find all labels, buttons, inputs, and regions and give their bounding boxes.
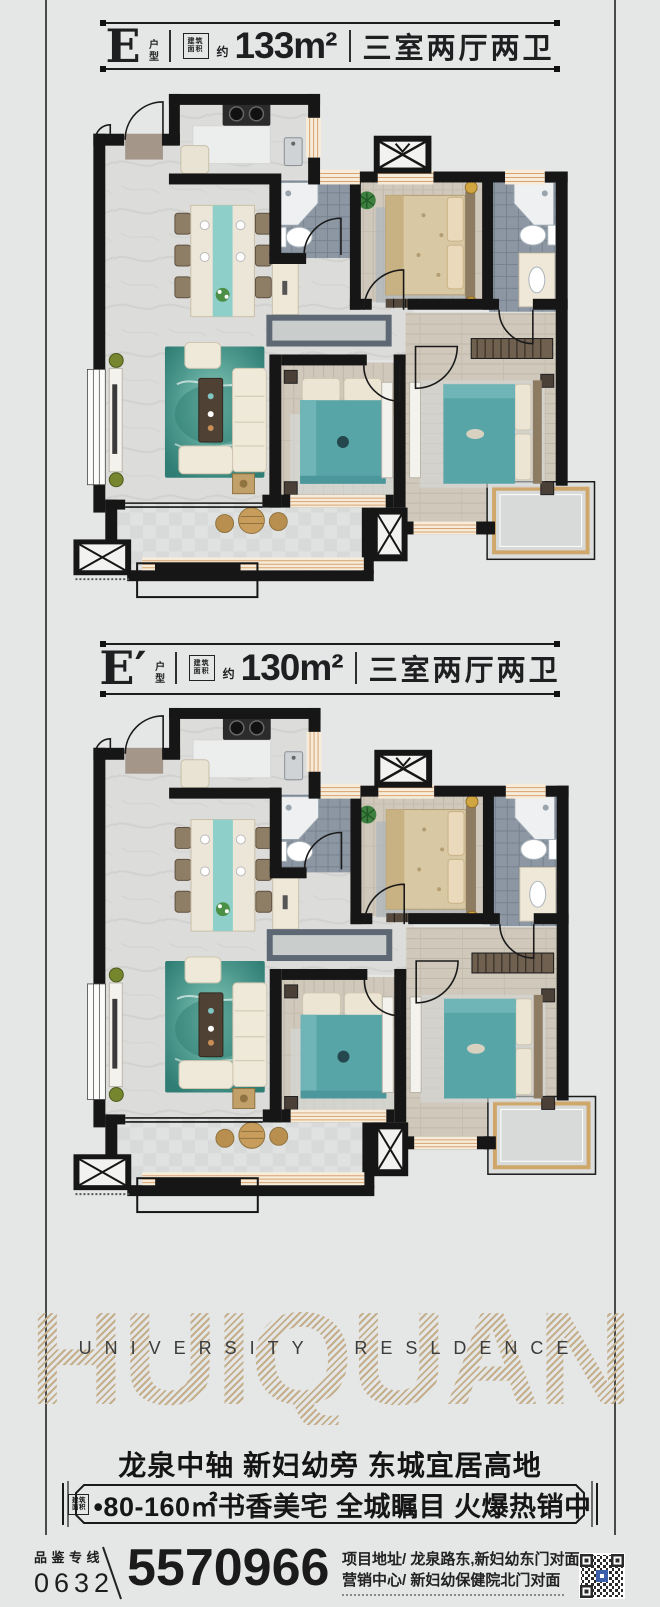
plan-eprime-area: 130m²: [241, 647, 343, 689]
plan-eprime-suffix: 户型: [153, 661, 163, 685]
address-line-1: 项目地址/ 龙泉路东,新妇幼东门对面: [342, 1549, 572, 1570]
plan-e-top-rule: [104, 22, 556, 24]
divider: [175, 652, 177, 684]
divider: [355, 652, 357, 684]
plan-e-rooms: 三室两厅两卫: [363, 25, 555, 67]
banner-box-line2: 面积: [72, 1504, 86, 1511]
banner-area-box-icon: 建筑 面积: [68, 1494, 89, 1515]
approx-label: 约: [223, 665, 235, 682]
plan-eprime-bottom-rule: [104, 693, 556, 695]
banner-text: •80-160㎡书香美宅 全城瞩目 火爆热销中: [93, 1485, 591, 1524]
area-box-line2: 面积: [188, 46, 204, 54]
plan-e-suffix: 户型: [147, 39, 157, 63]
promo-banner: 建筑 面积 •80-160㎡书香美宅 全城瞩目 火爆热销中: [60, 1481, 600, 1527]
area-box-line2: 面积: [194, 668, 210, 676]
area-box-icon: 建筑 面积: [189, 655, 215, 681]
plan-e-letter: E: [105, 23, 140, 69]
banner-content: 建筑 面积 •80-160㎡书香美宅 全城瞩目 火爆热销中: [60, 1481, 600, 1527]
headline: 龙泉中轴 新妇幼旁 东城宜居高地: [0, 1444, 660, 1484]
address-block: 项目地址/ 龙泉路东,新妇幼东门对面 营销中心/ 新妇幼保健院北门对面: [342, 1549, 572, 1591]
divider: [169, 30, 171, 62]
area-box-line1: 建筑: [194, 660, 210, 668]
qr-code: [579, 1553, 625, 1599]
slash-divider: [100, 1545, 124, 1601]
area-box-line1: 建筑: [188, 38, 204, 46]
approx-label: 约: [217, 43, 229, 60]
divider: [349, 30, 351, 62]
floorplan-e: [64, 86, 599, 613]
plan-eprime-header: E′ 户型 建筑 面积 约 130m² 三室两厅两卫: [0, 648, 660, 688]
floorplan-eprime: [62, 700, 602, 1228]
english-tagline: UNIVERSITY RESLDENCE: [0, 1338, 660, 1359]
poster: E 户型 建筑 面积 约 133m² 三室两厅两卫 E′ 户型 建筑 面积 约 …: [0, 0, 660, 1607]
phone-number: 5570966: [127, 1538, 329, 1598]
address-fineprint-dots: [342, 1594, 564, 1596]
huiquan-watermark: HUIQUAN: [0, 1293, 660, 1425]
plan-eprime-top-rule: [104, 643, 556, 645]
plan-e-bottom-rule: [104, 68, 556, 70]
plan-e-area: 133m²: [235, 25, 337, 67]
plan-eprime-letter: E′: [99, 645, 146, 691]
plan-eprime-rooms: 三室两厅两卫: [369, 647, 561, 689]
plan-e-header: E 户型 建筑 面积 约 133m² 三室两厅两卫: [0, 26, 660, 66]
address-line-2: 营销中心/ 新妇幼保健院北门对面: [342, 1570, 572, 1591]
area-box-icon: 建筑 面积: [183, 33, 209, 59]
banner-box-line1: 建筑: [72, 1497, 86, 1504]
